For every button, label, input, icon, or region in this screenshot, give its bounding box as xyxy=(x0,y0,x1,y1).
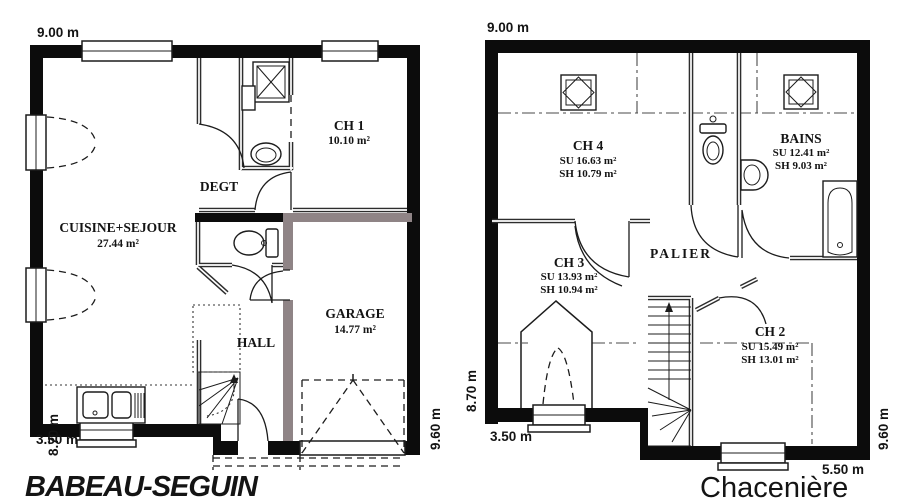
roof-window-icon xyxy=(561,75,596,110)
room-label-ch1: CH 1 xyxy=(334,118,365,133)
roof-window-icon xyxy=(784,75,818,109)
washbasin-icon xyxy=(741,160,768,190)
dimension-bottom-left-upper: 3.50 m xyxy=(490,429,532,444)
door-swing-icon xyxy=(232,265,272,303)
washbasin-icon xyxy=(251,143,281,165)
palier-doors xyxy=(575,205,789,324)
porch-outline xyxy=(213,455,405,470)
model-name: Chacenière xyxy=(700,472,848,500)
dimension-bottom-left-ground: 3.50 m xyxy=(36,432,78,447)
floor-plan-sheet: CH 1 10.10 m² DEGT CUISINE+SEJOUR 27.44 … xyxy=(0,0,900,500)
ground-floor-plan: CH 1 10.10 m² DEGT CUISINE+SEJOUR 27.44 … xyxy=(26,25,443,470)
room-su-bains: SU 12.41 m² xyxy=(773,147,830,159)
window-sill xyxy=(528,425,590,432)
room-area-ch1: 10.10 m² xyxy=(328,135,370,147)
room-label-ch3: CH 3 xyxy=(554,255,585,270)
room-sh-ch3: SH 10.94 m² xyxy=(540,284,598,296)
dimension-right-ground: 9.60 m xyxy=(428,408,443,450)
room-label-degt: DEGT xyxy=(200,179,238,194)
dimension-top-ground: 9.00 m xyxy=(37,25,79,40)
room-sh-bains: SH 9.03 m² xyxy=(775,160,828,172)
room-label-ch2: CH 2 xyxy=(755,324,786,339)
garage-door-opening xyxy=(300,441,405,455)
room-sh-ch4: SH 10.79 m² xyxy=(559,168,617,180)
ground-partitions xyxy=(198,58,407,424)
stairs-icon xyxy=(199,372,240,424)
door-swing-icon xyxy=(719,297,766,324)
room-su-ch3: SU 13.93 m² xyxy=(541,271,598,283)
dimension-left-upper: 8.70 m xyxy=(464,370,479,412)
door-swing-icon xyxy=(199,124,244,168)
toilet-icon xyxy=(234,229,278,257)
room-label-bains: BAINS xyxy=(780,131,821,146)
window-sill xyxy=(718,463,788,470)
kitchen-sink-icon xyxy=(45,385,193,423)
room-label-ch4: CH 4 xyxy=(573,138,604,153)
floor-plans-drawing: CH 1 10.10 m² DEGT CUISINE+SEJOUR 27.44 … xyxy=(0,0,900,500)
room-label-palier: PALIER xyxy=(650,246,712,261)
room-su-ch2: SU 15.49 m² xyxy=(742,341,799,353)
stairs-icon xyxy=(648,302,691,446)
entrance-door-icon xyxy=(238,399,268,441)
dimension-top-upper: 9.00 m xyxy=(487,20,529,35)
room-label-garage: GARAGE xyxy=(325,306,384,321)
room-sh-ch2: SH 13.01 m² xyxy=(741,354,799,366)
company-logo: BABEAU-SEGUIN xyxy=(25,471,259,500)
wc-top-wall xyxy=(195,213,283,222)
upper-floor-plan: CH 4 SU 16.63 m² SH 10.79 m² BAINS SU 12… xyxy=(464,20,891,477)
french-door-swing-icon xyxy=(47,117,96,320)
door-swing-icon xyxy=(742,210,789,258)
duct-icon xyxy=(242,86,255,110)
shower-icon xyxy=(253,62,289,102)
room-label-cuisine: CUISINE+SEJOUR xyxy=(59,220,176,235)
window-sill xyxy=(77,440,136,447)
dimension-right-upper: 9.60 m xyxy=(876,408,891,450)
dormer-icon xyxy=(521,301,592,408)
room-area-garage: 14.77 m² xyxy=(334,324,376,336)
room-area-cuisine: 27.44 m² xyxy=(97,238,139,250)
room-label-hall: HALL xyxy=(237,335,275,350)
bathtub-icon xyxy=(823,181,857,257)
room-su-ch4: SU 16.63 m² xyxy=(560,155,617,167)
toilet-icon xyxy=(700,116,726,164)
door-swing-icon xyxy=(255,172,291,210)
